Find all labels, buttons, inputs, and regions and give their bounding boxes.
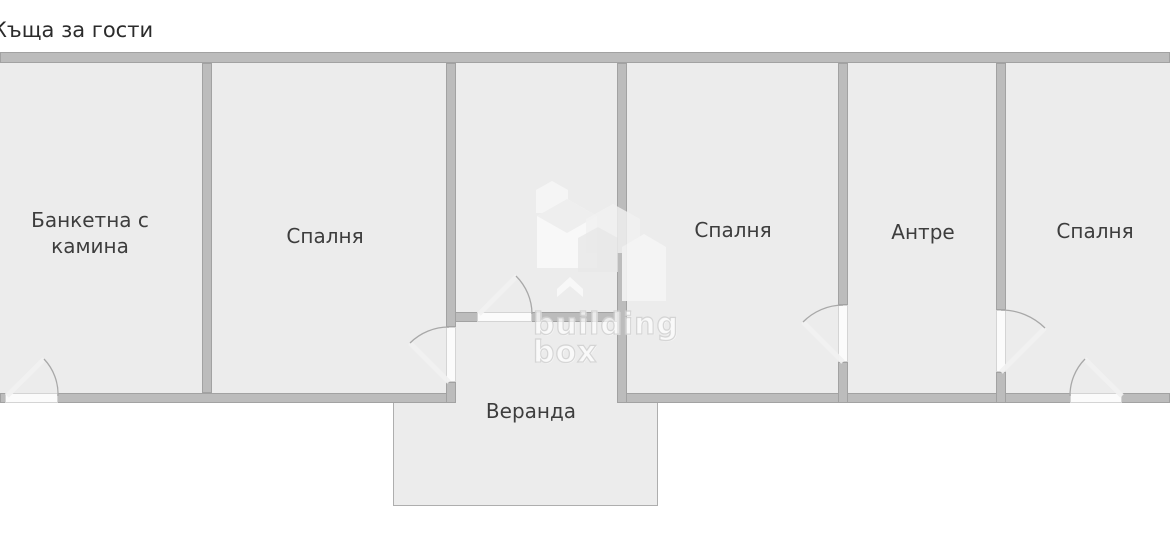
room-label-bedroom2: Спалня	[694, 217, 771, 243]
wall-antre-bedroom3-lower	[996, 372, 1006, 403]
door-opening-bedroom3-south	[1070, 393, 1122, 403]
room-label-banketna: Банкетна с камина	[15, 207, 165, 259]
building-floor	[0, 53, 1170, 403]
door-opening-banketna	[5, 393, 58, 403]
wall-banketna-bedroom1	[202, 63, 212, 393]
plan-title: Къща за гости	[0, 18, 153, 42]
floorplan-canvas: Къща за гости	[0, 0, 1170, 540]
wall-exterior-top	[0, 52, 1170, 63]
wall-bedroom1-vestibule-upper	[446, 63, 456, 327]
wall-bedroom1-vestibule-lower	[446, 382, 456, 403]
wall-bedroom2-antre-lower	[838, 362, 848, 403]
door-opening-bedroom2	[838, 305, 848, 362]
door-opening-vestibule	[477, 312, 532, 322]
wall-antre-bedroom3-upper	[996, 63, 1006, 310]
room-label-veranda: Веранда	[486, 398, 576, 424]
door-opening-bedroom1	[446, 327, 456, 382]
room-label-bedroom1: Спалня	[286, 223, 363, 249]
door-opening-bedroom3-antre	[996, 310, 1006, 372]
wall-exterior-bottom-left	[0, 393, 455, 403]
wall-bedroom2-antre-upper	[838, 63, 848, 305]
wall-vestibule-bedroom2	[617, 63, 627, 403]
room-label-antre: Антре	[891, 219, 954, 245]
room-label-bedroom3: Спалня	[1056, 218, 1133, 244]
